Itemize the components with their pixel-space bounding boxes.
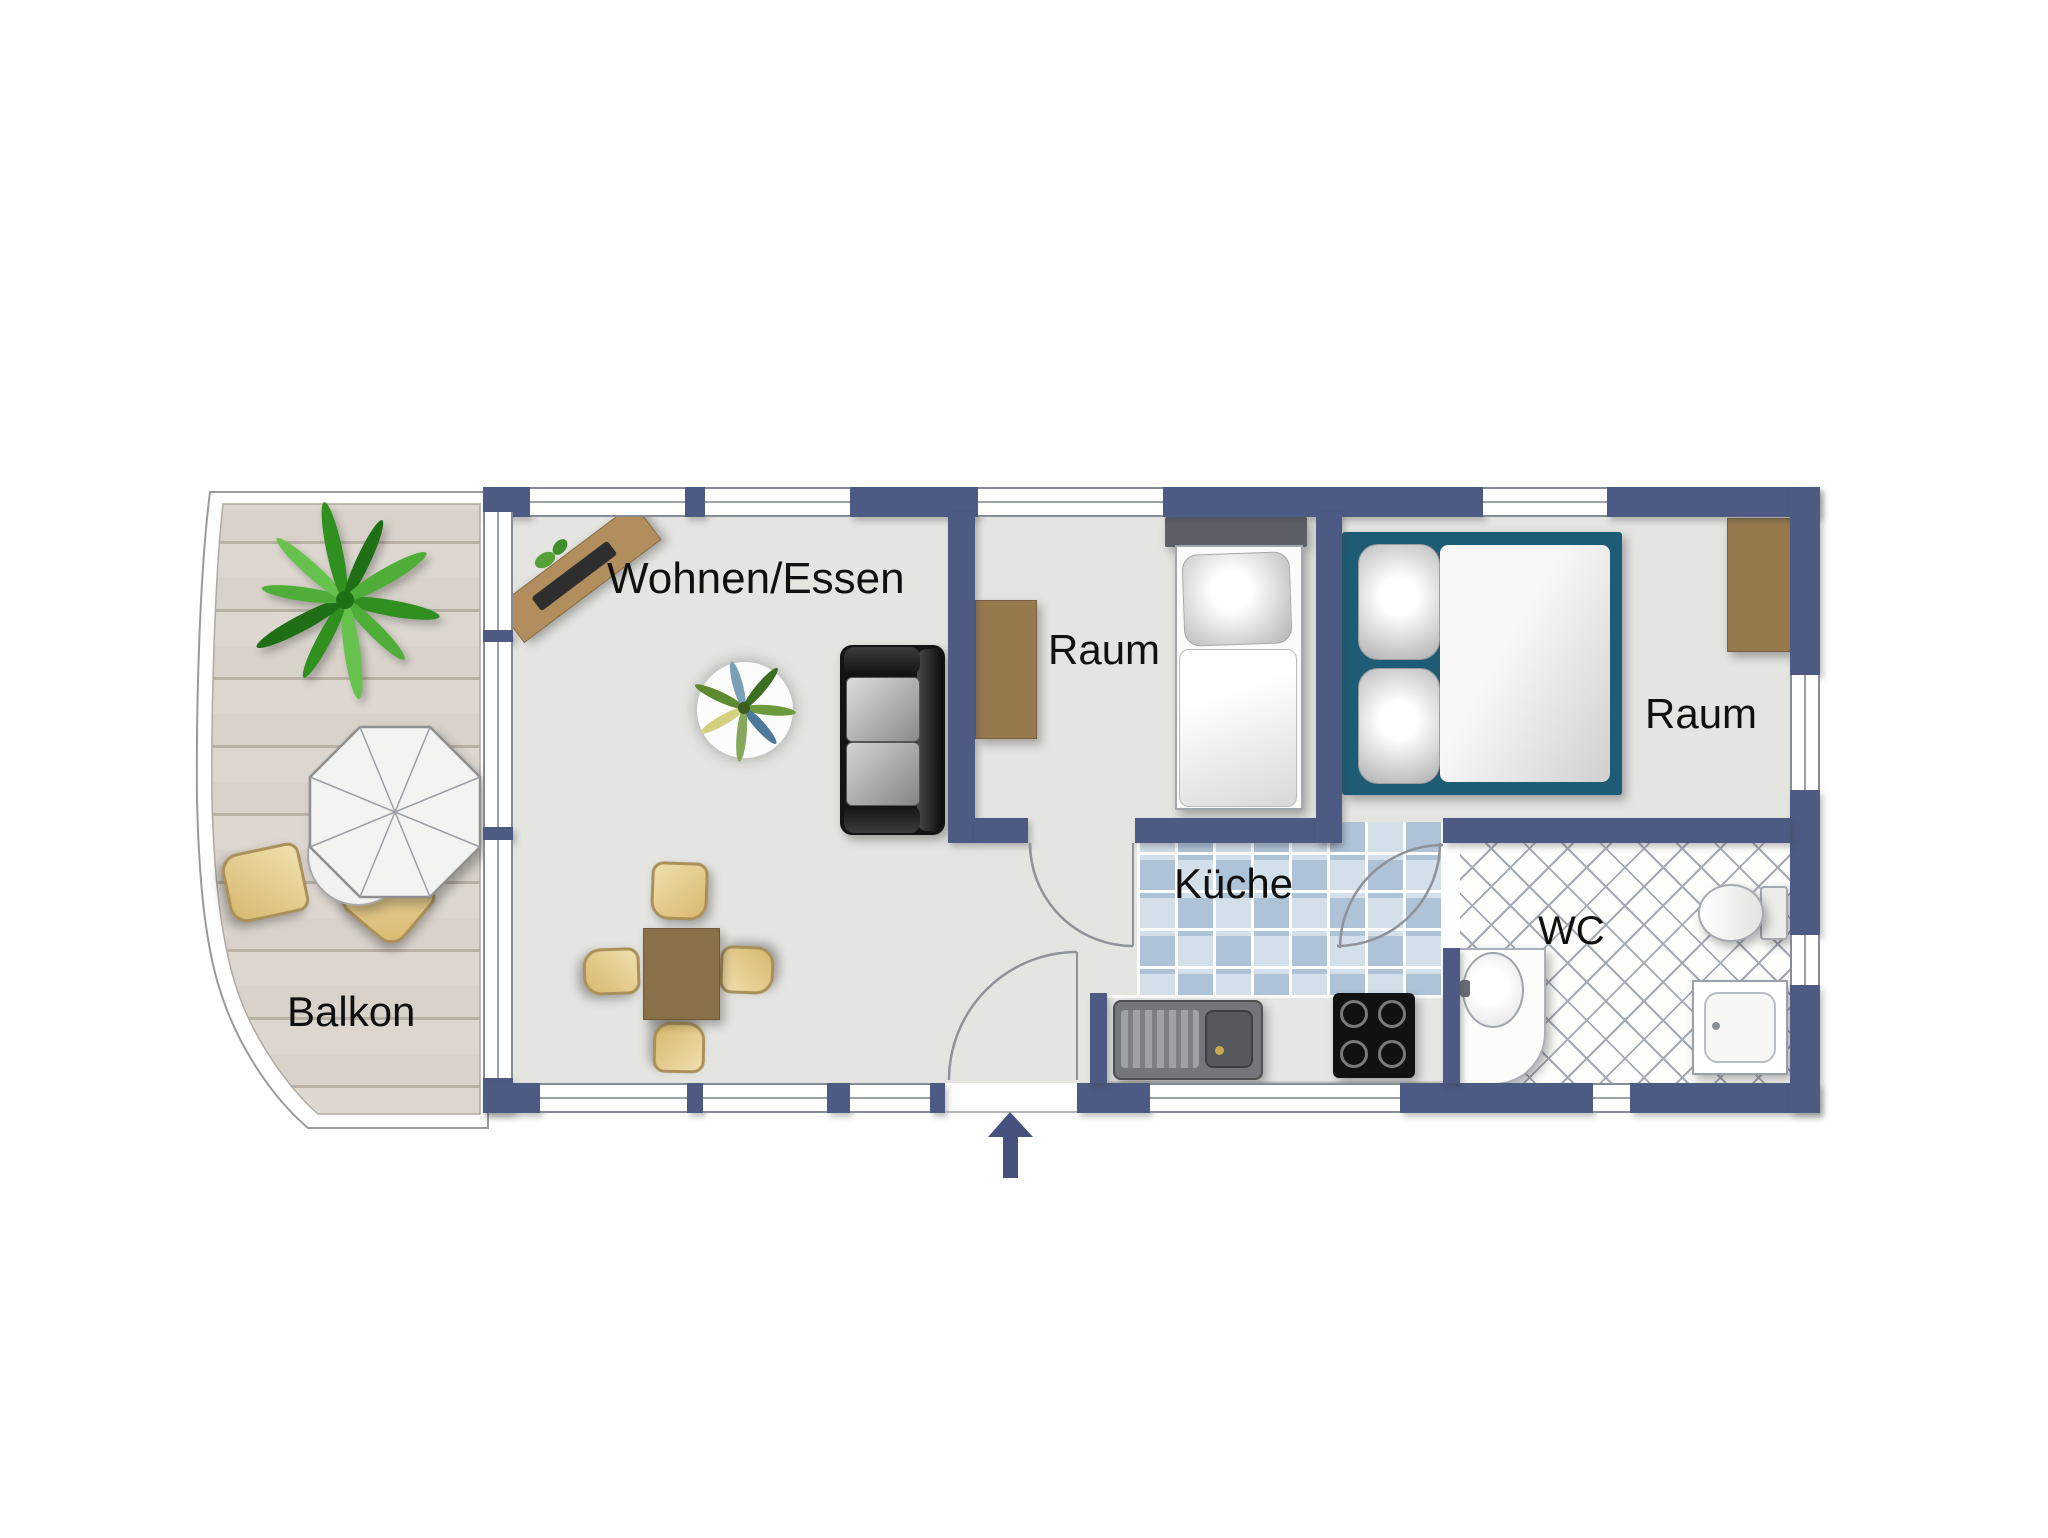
- entrance-arrow: [988, 1112, 1033, 1178]
- room1-door-arc: [1030, 843, 1133, 946]
- floor-plan-canvas: Balkon Wohnen/Essen Raum Raum Küche WC: [0, 0, 2048, 1538]
- label-raum-1: Raum: [1048, 628, 1160, 672]
- label-wc: WC: [1538, 910, 1605, 952]
- wc-door-arc: [1340, 845, 1443, 948]
- label-raum-2: Raum: [1645, 692, 1757, 736]
- entrance-door-arc: [949, 952, 1077, 1080]
- label-kueche: Küche: [1174, 862, 1293, 906]
- rug-plant: [693, 660, 796, 762]
- sideboard-plant: [532, 536, 570, 571]
- annotations-layer: [0, 0, 2048, 1538]
- label-wohnen-essen: Wohnen/Essen: [607, 556, 905, 602]
- room2-door-arc: [1337, 843, 1440, 946]
- label-balkon: Balkon: [287, 990, 415, 1034]
